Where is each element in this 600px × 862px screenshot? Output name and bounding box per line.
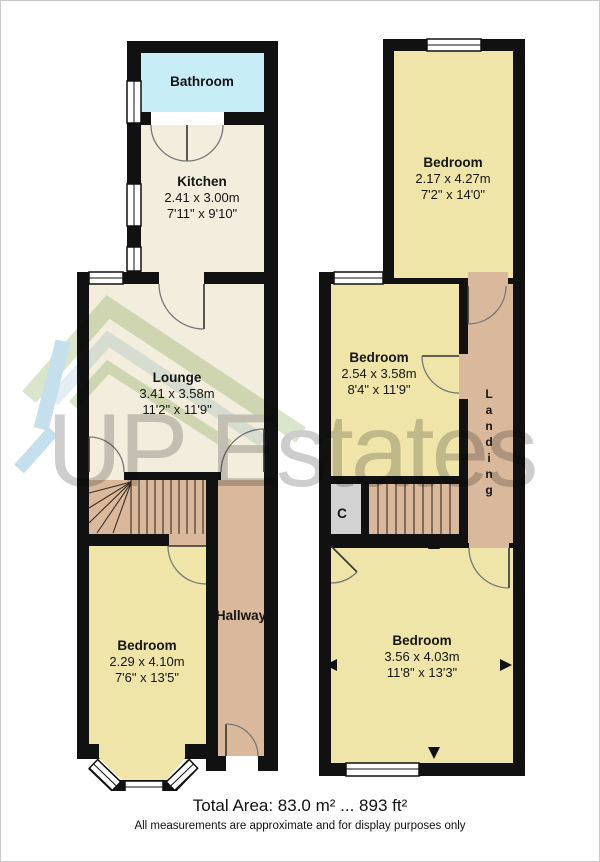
room-name: Bathroom bbox=[142, 74, 262, 90]
bathroom-label: Bathroom bbox=[142, 74, 262, 90]
landing-label: Landing bbox=[478, 387, 500, 499]
room-dim-metric: 3.41 x 3.58m bbox=[117, 386, 237, 402]
room-dim-imperial: 7'6" x 13'5" bbox=[87, 670, 207, 686]
room-dim-imperial: 11'2" x 11'9" bbox=[117, 402, 237, 418]
floorplan-page: UP Estates Bathroom Kitchen 2.41 x 3.00m… bbox=[0, 0, 600, 862]
room-name: C bbox=[322, 506, 362, 522]
kitchen-label: Kitchen 2.41 x 3.00m 7'11" x 9'10" bbox=[142, 174, 262, 222]
room-dim-imperial: 7'2" x 14'0" bbox=[393, 187, 513, 203]
bedroom-front-label: Bedroom 2.17 x 4.27m 7'2" x 14'0" bbox=[393, 155, 513, 203]
cupboard-label: C bbox=[322, 506, 362, 522]
room-dim-imperial: 11'8" x 13'3" bbox=[362, 665, 482, 681]
room-dim-metric: 2.29 x 4.10m bbox=[87, 654, 207, 670]
bay-window-center bbox=[125, 781, 163, 791]
room-dim-imperial: 8'4" x 11'9" bbox=[319, 382, 439, 398]
room-name: Hallway bbox=[191, 608, 291, 624]
room-dim-metric: 3.56 x 4.03m bbox=[362, 649, 482, 665]
room-dim-imperial: 7'11" x 9'10" bbox=[142, 206, 262, 222]
room-dim-metric: 2.54 x 3.58m bbox=[319, 366, 439, 382]
room-dim-metric: 2.17 x 4.27m bbox=[393, 171, 513, 187]
disclaimer-text: All measurements are approximate and for… bbox=[1, 820, 599, 832]
hallway-label: Hallway bbox=[191, 608, 291, 624]
room-name: Bedroom bbox=[87, 638, 207, 654]
room-name: Lounge bbox=[117, 370, 237, 386]
bedroom-back-label: Bedroom 3.56 x 4.03m 11'8" x 13'3" bbox=[362, 633, 482, 681]
total-area-text: Total Area: 83.0 m² ... 893 ft² bbox=[1, 796, 599, 816]
bedroom-middle-label: Bedroom 2.54 x 3.58m 8'4" x 11'9" bbox=[319, 350, 439, 398]
room-name: Bedroom bbox=[362, 633, 482, 649]
room-name: Bedroom bbox=[319, 350, 439, 366]
room-name: Bedroom bbox=[393, 155, 513, 171]
bedroom-gf-label: Bedroom 2.29 x 4.10m 7'6" x 13'5" bbox=[87, 638, 207, 686]
lounge-label: Lounge 3.41 x 3.58m 11'2" x 11'9" bbox=[117, 370, 237, 418]
room-dim-metric: 2.41 x 3.00m bbox=[142, 190, 262, 206]
room-name: Kitchen bbox=[142, 174, 262, 190]
